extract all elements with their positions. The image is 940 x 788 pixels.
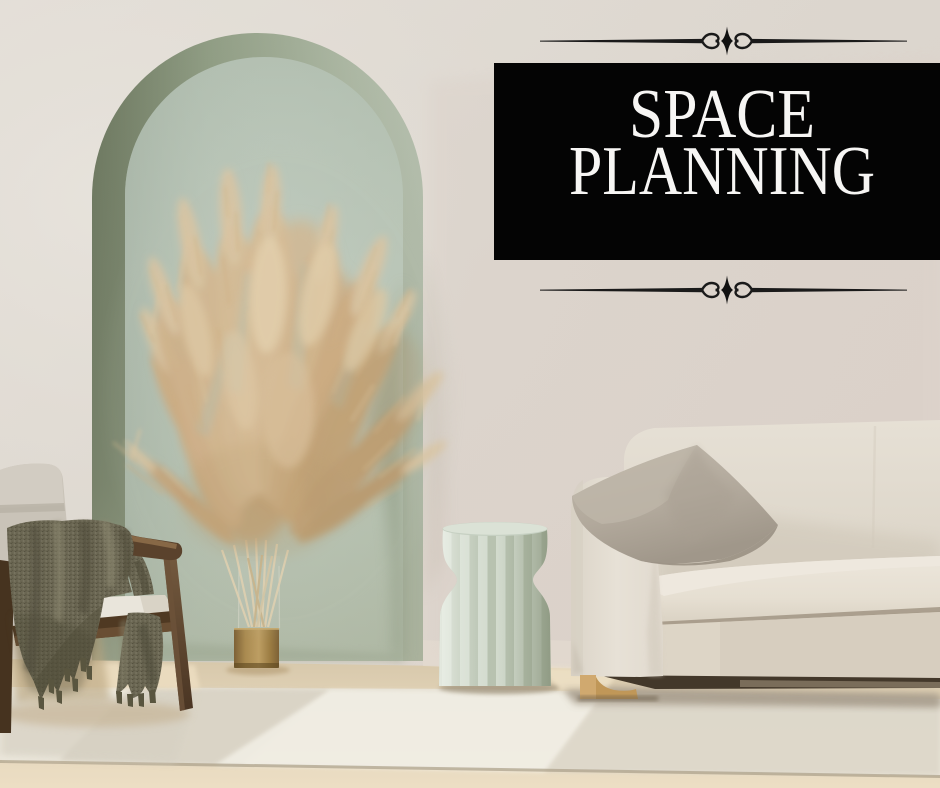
svg-text:PLANNING: PLANNING — [569, 133, 875, 210]
